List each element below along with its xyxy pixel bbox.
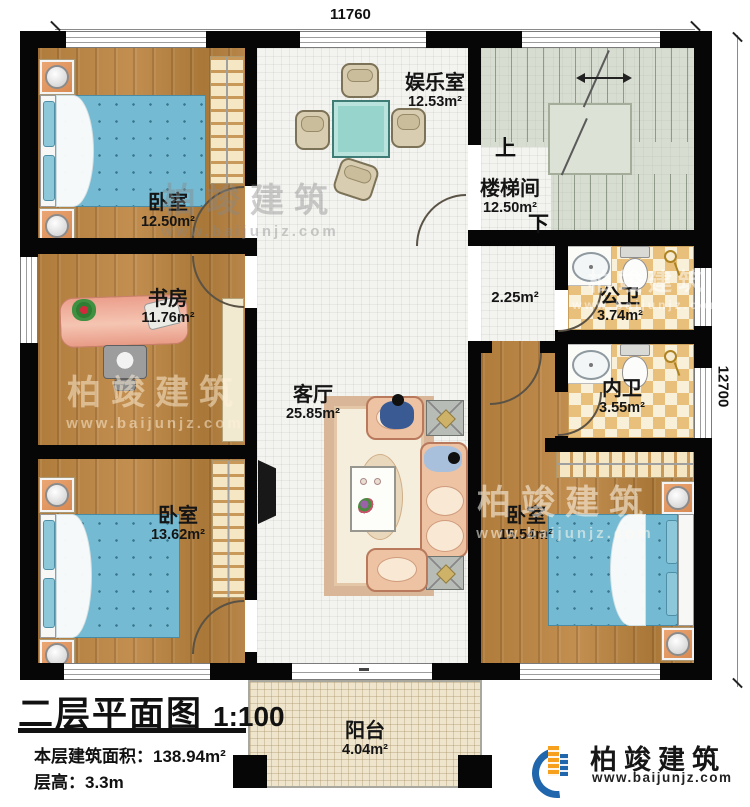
wall-interior xyxy=(545,438,712,452)
toilet-tank xyxy=(620,344,650,356)
wall-interior xyxy=(245,652,257,680)
room-area: 13.62m² xyxy=(118,527,238,543)
room-area: 3.55m² xyxy=(580,400,664,416)
window xyxy=(694,268,712,326)
sofa-cushion xyxy=(426,520,464,552)
wall-right xyxy=(694,31,712,680)
armchair xyxy=(366,548,428,592)
room-label-balcony: 阳台 4.04m² xyxy=(305,720,425,759)
pillow xyxy=(666,572,678,616)
sink xyxy=(572,350,610,380)
floor-height-label: 层高： xyxy=(34,773,85,792)
room-name: 阳台 xyxy=(305,720,425,742)
top-dimension-label: 11760 xyxy=(330,6,371,23)
window xyxy=(66,31,206,48)
room-label-hallway: 2.25m² xyxy=(478,290,552,307)
floor-area-line: 本层建筑面积：138.94m² xyxy=(34,742,226,767)
room-name: 内卫 xyxy=(580,378,664,400)
side-table xyxy=(426,556,464,590)
chair xyxy=(295,110,330,150)
room-name: 书房 xyxy=(108,288,228,310)
room-area: 15.54m² xyxy=(466,527,586,543)
chair xyxy=(391,108,426,148)
room-label-bedroom-bottom-right: 卧室 15.54m² xyxy=(466,505,586,544)
wall-interior xyxy=(555,246,568,290)
room-name: 楼梯间 xyxy=(455,178,565,200)
chair xyxy=(341,63,379,98)
room-name: 卧室 xyxy=(118,505,238,527)
nightstand xyxy=(40,60,74,94)
stair-treads-lower xyxy=(558,174,694,230)
wall-interior xyxy=(555,330,712,344)
floor-height-value: 3.3m xyxy=(85,773,124,792)
sliding-door xyxy=(292,663,432,680)
right-dimension-label: 12700 xyxy=(714,366,731,408)
room-name: 娱乐室 xyxy=(380,72,490,94)
floor-area-label: 本层建筑面积： xyxy=(34,747,153,766)
brand-website: www.baijunjz.com xyxy=(592,770,733,785)
teacup xyxy=(374,478,381,485)
brand-logo: 柏竣建筑 www.baijunjz.com xyxy=(532,738,742,798)
room-label-public-bath: 公卫 3.74m² xyxy=(578,286,662,325)
wall-left xyxy=(20,31,38,680)
nightstand xyxy=(40,478,74,512)
computer-chair xyxy=(103,345,147,379)
room-label-living: 客厅 25.85m² xyxy=(258,384,368,423)
window xyxy=(64,663,210,680)
room-name: 卧室 xyxy=(108,192,228,214)
tv xyxy=(258,460,276,524)
person-head xyxy=(392,394,404,406)
teacup xyxy=(360,478,367,485)
room-name: 卧室 xyxy=(466,505,586,527)
window xyxy=(694,368,712,438)
logo-building-icon xyxy=(560,754,568,776)
pillow xyxy=(666,520,678,564)
right-dimension-line xyxy=(737,35,738,687)
wall-interior xyxy=(555,436,568,452)
window xyxy=(520,663,660,680)
toilet-tank xyxy=(620,246,650,258)
stair-landing-box xyxy=(548,103,632,175)
room-name: 公卫 xyxy=(578,286,662,308)
top-dimension-line xyxy=(55,29,695,30)
window xyxy=(300,31,426,48)
pillow xyxy=(43,520,55,570)
balcony-post xyxy=(233,755,267,788)
pillow xyxy=(43,578,55,628)
window xyxy=(20,257,38,343)
floor-height-line: 层高：3.3m xyxy=(34,768,124,793)
room-label-study: 书房 11.76m² xyxy=(108,288,228,327)
wardrobe xyxy=(556,450,694,478)
wall-interior xyxy=(245,238,257,256)
window xyxy=(522,31,660,48)
chair-base xyxy=(114,379,136,391)
person-head xyxy=(448,452,460,464)
nightstand xyxy=(662,482,694,514)
bed-headboard xyxy=(678,514,694,626)
wall-interior xyxy=(245,308,257,600)
wall-interior xyxy=(245,48,257,186)
nightstand xyxy=(662,628,694,660)
logo-building-icon xyxy=(548,746,559,776)
room-label-bedroom-top-left: 卧室 12.50m² xyxy=(108,192,228,231)
room-area: 12.53m² xyxy=(380,94,490,110)
room-area: 2.25m² xyxy=(478,290,552,307)
arrowhead-right xyxy=(623,73,632,83)
coffee-table xyxy=(350,466,396,532)
pillow xyxy=(43,101,55,147)
room-area: 12.50m² xyxy=(108,214,228,230)
room-label-bedroom-bottom-left: 卧室 13.62m² xyxy=(118,505,238,544)
room-area: 11.76m² xyxy=(108,310,228,326)
stair-up-label: 上 xyxy=(495,132,516,162)
room-area: 3.74m² xyxy=(578,308,662,324)
arrowhead-left xyxy=(576,73,585,83)
room-area: 25.85m² xyxy=(258,406,368,422)
room-name: 客厅 xyxy=(258,384,368,406)
room-area: 4.04m² xyxy=(305,742,425,758)
wall-interior xyxy=(555,330,568,392)
side-table xyxy=(426,400,464,436)
wall-interior xyxy=(468,341,492,353)
floor-plan-canvas: 11760 12700 上 下 xyxy=(0,0,750,807)
desk-plant xyxy=(72,299,96,321)
room-label-entertainment: 娱乐室 12.53m² xyxy=(380,72,490,111)
room-label-private-bath: 内卫 3.55m² xyxy=(580,378,664,417)
flower-vase xyxy=(358,498,376,516)
wall-interior xyxy=(468,230,712,246)
wall-interior xyxy=(38,238,245,254)
wall-interior xyxy=(540,341,568,353)
title-underline xyxy=(18,728,246,733)
floor-area-value: 138.94m² xyxy=(153,747,226,766)
stair-down-label: 下 xyxy=(528,208,549,238)
stair-direction-arrow xyxy=(583,77,625,79)
sink xyxy=(572,252,610,282)
wall-interior xyxy=(38,445,245,459)
sofa-cushion xyxy=(426,486,464,516)
balcony-post xyxy=(458,755,492,788)
wardrobe xyxy=(210,56,244,184)
bed-sheet xyxy=(610,514,646,626)
pillow xyxy=(43,155,55,201)
